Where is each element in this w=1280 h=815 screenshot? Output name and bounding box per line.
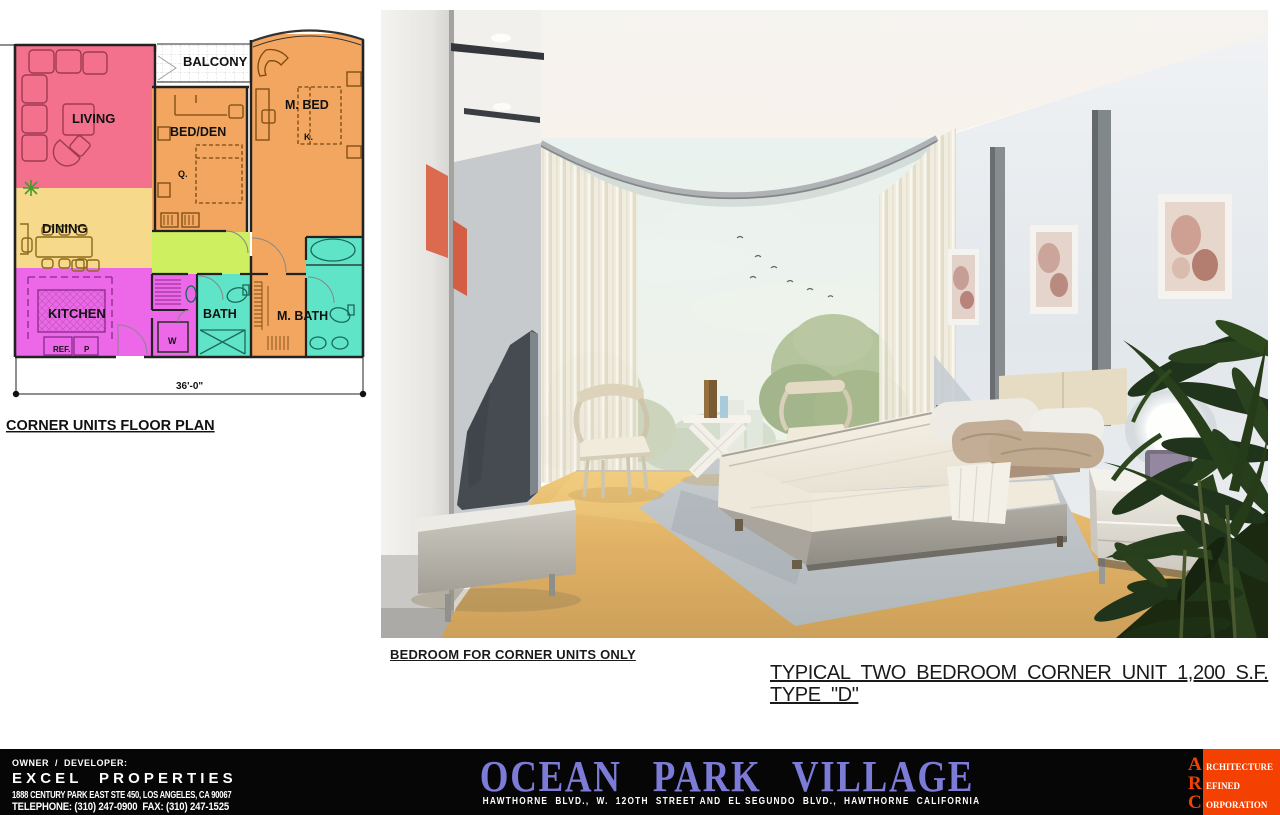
- svg-text:W: W: [168, 336, 177, 346]
- svg-text:LIVING: LIVING: [72, 111, 115, 126]
- svg-text:P: P: [84, 345, 90, 354]
- svg-text:KITCHEN: KITCHEN: [48, 306, 106, 321]
- svg-text:BED/DEN: BED/DEN: [170, 125, 226, 139]
- svg-text:M. BATH: M. BATH: [277, 309, 328, 323]
- svg-text:K.: K.: [304, 132, 313, 142]
- svg-text:BATH: BATH: [203, 307, 237, 321]
- svg-text:REF.: REF.: [53, 345, 70, 354]
- svg-text:36'-0": 36'-0": [176, 381, 203, 392]
- svg-text:CORNER UNITS FLOOR PLAN: CORNER UNITS FLOOR PLAN: [6, 418, 215, 434]
- svg-text:M. BED: M. BED: [285, 98, 329, 112]
- svg-text:Q.: Q.: [178, 169, 188, 179]
- svg-text:BALCONY: BALCONY: [183, 54, 248, 69]
- svg-text:DINING: DINING: [42, 221, 88, 236]
